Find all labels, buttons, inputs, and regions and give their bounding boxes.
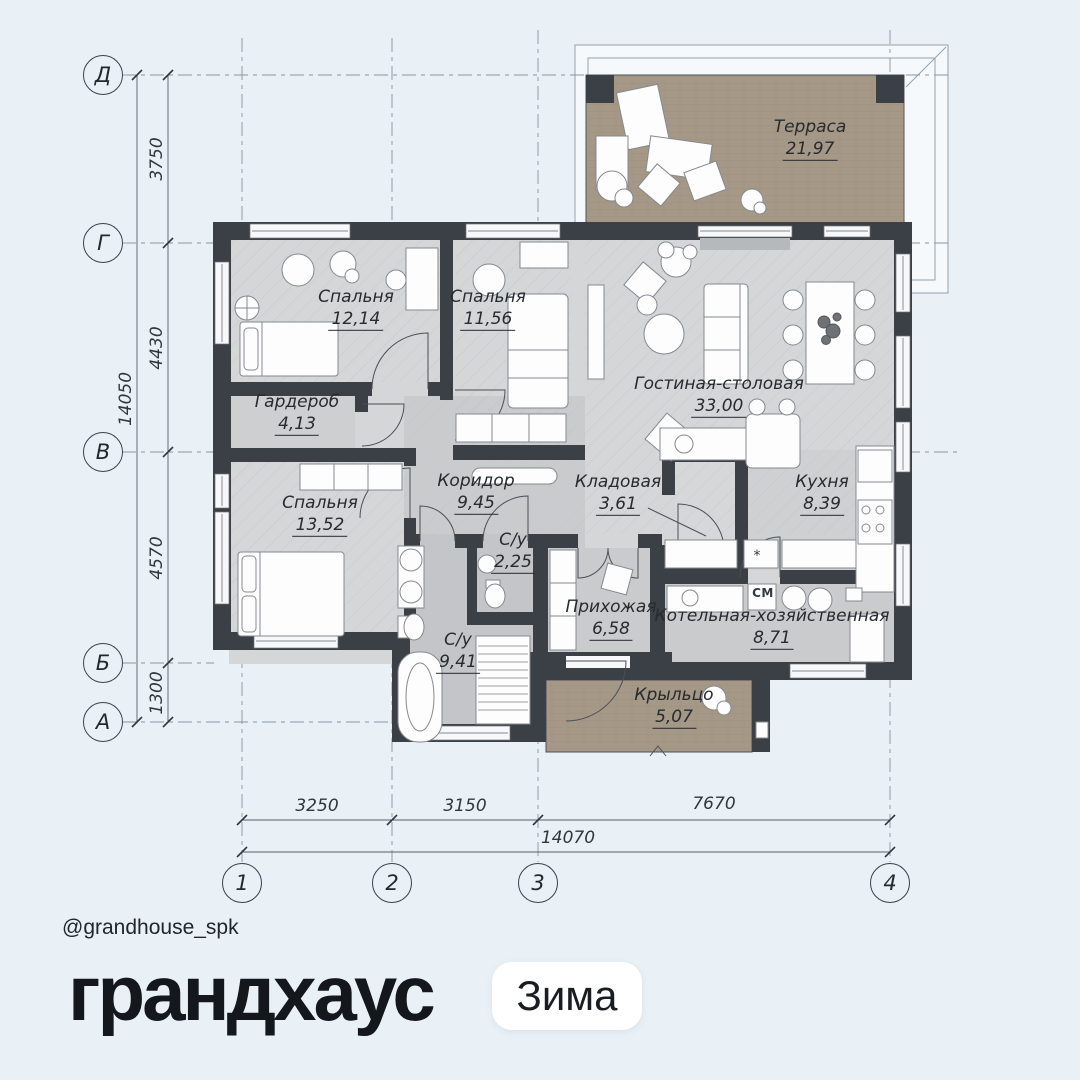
axis-col-1: 1 [222, 863, 262, 903]
dim-3150: 3150 [443, 796, 486, 816]
room-label-bathroom: С/у 9,41 [436, 630, 480, 674]
dim-3750: 3750 [147, 137, 167, 180]
washing-machine-label: СМ [752, 586, 774, 600]
dim-14070: 14070 [541, 828, 595, 848]
axis-row-a: А [83, 702, 123, 742]
room-label-living-dining: Гостиная-столовая 33,00 [634, 374, 804, 418]
brand-logo: грандхаус [68, 948, 433, 1039]
room-label-wardrobe: Гардероб 4,13 [255, 392, 340, 436]
room-label-porch: Крыльцо 5,07 [634, 685, 713, 729]
room-label-bedroom-1: Спальня 12,14 [318, 287, 394, 331]
axis-row-b: Б [83, 643, 123, 683]
room-label-pantry: Кладовая 3,61 [575, 472, 661, 516]
room-label-terrace: Терраса 21,97 [774, 117, 847, 161]
axis-row-d: Д [83, 55, 123, 95]
room-label-kitchen: Кухня 8,39 [795, 472, 849, 516]
room-label-bedroom-2: Спальня 11,56 [450, 287, 526, 331]
room-label-wc-small: С/у 2,25 [491, 530, 535, 574]
dim-1300: 1300 [147, 671, 167, 714]
series-badge: Зима [492, 962, 642, 1030]
room-label-hallway: Прихожая 6,58 [565, 597, 656, 641]
dim-4570: 4570 [147, 536, 167, 579]
dim-14050: 14050 [116, 372, 136, 426]
social-handle: @grandhouse_spk [62, 916, 239, 940]
axis-row-g: Г [83, 223, 123, 263]
poster: * Терраса 21,97 Спальня 12,14 Спальня 11… [0, 0, 1080, 1080]
dim-4430: 4430 [147, 326, 167, 369]
axis-row-v: В [83, 432, 123, 472]
hob-symbol: * [754, 548, 761, 564]
room-label-bedroom-3: Спальня 13,52 [282, 493, 358, 537]
dim-3250: 3250 [295, 796, 338, 816]
axis-col-3: 3 [518, 863, 558, 903]
room-label-boiler-utility: Котельная-хозяйственная 8,71 [655, 606, 890, 650]
dim-7670: 7670 [692, 794, 735, 814]
axis-col-4: 4 [870, 863, 910, 903]
terrace-door-threshold [700, 238, 790, 250]
axis-col-2: 2 [372, 863, 412, 903]
room-label-corridor: Коридор 9,45 [437, 471, 514, 515]
